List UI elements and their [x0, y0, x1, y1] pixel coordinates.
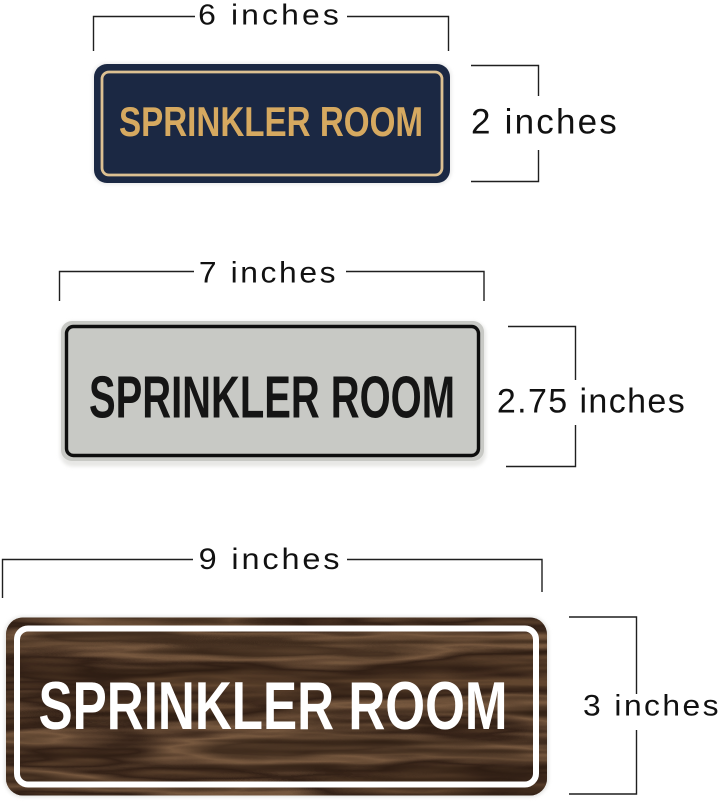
svg-text:7 inches: 7 inches: [199, 256, 338, 290]
svg-text:SPRINKLER ROOM: SPRINKLER ROOM: [119, 98, 423, 145]
svg-text:SPRINKLER ROOM: SPRINKLER ROOM: [89, 365, 455, 431]
svg-text:3 inches: 3 inches: [583, 688, 721, 722]
svg-text:2.75 inches: 2.75 inches: [497, 383, 686, 421]
svg-text:SPRINKLER ROOM: SPRINKLER ROOM: [39, 668, 508, 744]
svg-text:6 inches: 6 inches: [198, 0, 342, 31]
svg-text:9 inches: 9 inches: [199, 542, 343, 575]
svg-text:2 inches: 2 inches: [471, 103, 619, 142]
